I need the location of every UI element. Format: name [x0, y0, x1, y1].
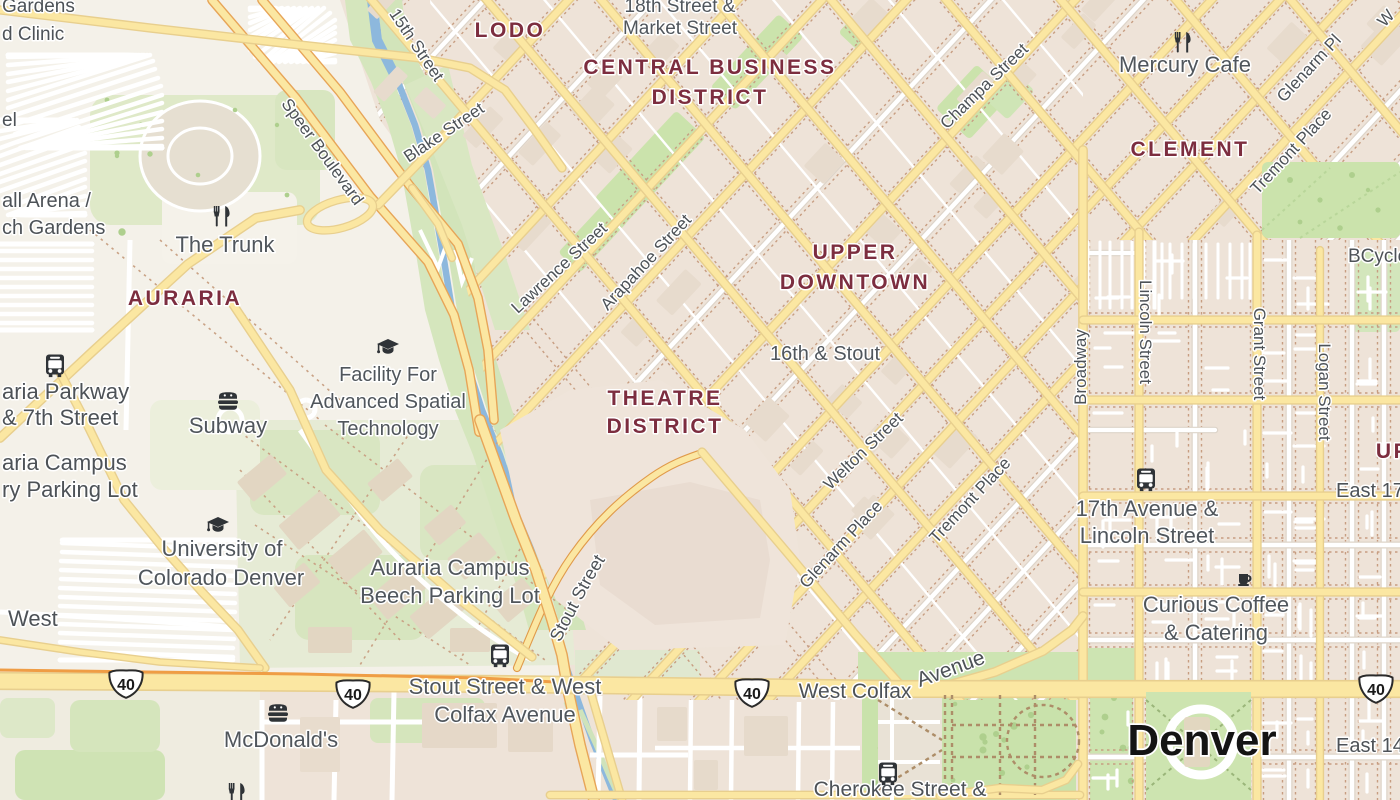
svg-text:Facility For: Facility For — [339, 364, 437, 386]
svg-text:LODO: LODO — [475, 19, 546, 42]
svg-text:Grant Street: Grant Street — [1250, 308, 1269, 401]
svg-text:UPPER: UPPER — [813, 241, 898, 264]
svg-text:Beech Parking Lot: Beech Parking Lot — [360, 583, 540, 608]
svg-text:University of: University of — [161, 536, 283, 561]
svg-text:16th & Stout: 16th & Stout — [770, 343, 881, 365]
svg-text:40: 40 — [743, 686, 761, 703]
svg-text:ry Parking Lot: ry Parking Lot — [2, 477, 138, 502]
svg-text:CLEMENT: CLEMENT — [1131, 138, 1250, 161]
svg-text:aria Parkway: aria Parkway — [2, 379, 129, 404]
svg-text:Stout Street & West: Stout Street & West — [409, 674, 602, 699]
svg-text:aria Campus: aria Campus — [2, 450, 127, 475]
svg-text:DISTRICT: DISTRICT — [607, 415, 724, 438]
svg-text:40: 40 — [344, 687, 362, 704]
svg-text:Denver: Denver — [1127, 716, 1276, 765]
svg-text:Curious Coffee: Curious Coffee — [1143, 592, 1289, 617]
svg-text:Market Street: Market Street — [623, 18, 738, 39]
svg-text:ch Gardens: ch Gardens — [2, 217, 105, 239]
svg-text:el: el — [2, 110, 17, 131]
svg-text:McDonald's: McDonald's — [224, 727, 338, 752]
svg-text:Mercury Cafe: Mercury Cafe — [1119, 52, 1251, 77]
svg-text:Logan Street: Logan Street — [1315, 343, 1334, 441]
svg-text:The Trunk: The Trunk — [175, 232, 275, 257]
svg-text:Colfax Avenue: Colfax Avenue — [434, 702, 575, 727]
svg-text:West: West — [8, 606, 58, 631]
svg-text:Gardens: Gardens — [2, 0, 75, 17]
svg-text:Broadway: Broadway — [1071, 329, 1090, 405]
svg-text:40: 40 — [117, 677, 135, 694]
svg-text:West Colfax: West Colfax — [799, 680, 912, 703]
svg-text:Cherokee Street &: Cherokee Street & — [814, 778, 987, 800]
svg-text:AURARIA: AURARIA — [128, 287, 242, 310]
svg-text:DISTRICT: DISTRICT — [652, 86, 769, 109]
svg-text:DOWNTOWN: DOWNTOWN — [780, 271, 930, 294]
svg-text:CENTRAL BUSINESS: CENTRAL BUSINESS — [583, 56, 836, 79]
svg-text:Subway: Subway — [189, 413, 267, 438]
svg-text:UP: UP — [1376, 440, 1400, 463]
svg-text:Advanced Spatial: Advanced Spatial — [310, 391, 466, 413]
svg-text:BCycle: BCycle — [1348, 246, 1400, 267]
svg-text:Auraria Campus: Auraria Campus — [371, 555, 530, 580]
svg-text:& 7th Street: & 7th Street — [2, 405, 118, 430]
svg-text:all Arena /: all Arena / — [2, 190, 91, 212]
svg-text:17th Avenue &: 17th Avenue & — [1076, 496, 1219, 521]
svg-text:East 14th A: East 14th A — [1336, 735, 1400, 757]
svg-text:THEATRE: THEATRE — [607, 387, 722, 410]
svg-text:& Catering: & Catering — [1164, 620, 1268, 645]
svg-text:18th Street &: 18th Street & — [625, 0, 736, 17]
svg-text:Lincoln Street: Lincoln Street — [1080, 523, 1215, 548]
svg-text:Lincoln Street: Lincoln Street — [1136, 280, 1155, 384]
svg-text:d Clinic: d Clinic — [2, 24, 64, 45]
svg-text:40: 40 — [1367, 682, 1385, 699]
svg-text:Colorado Denver: Colorado Denver — [138, 565, 304, 590]
svg-text:Technology: Technology — [337, 418, 438, 440]
svg-text:East 17t: East 17t — [1336, 480, 1400, 502]
